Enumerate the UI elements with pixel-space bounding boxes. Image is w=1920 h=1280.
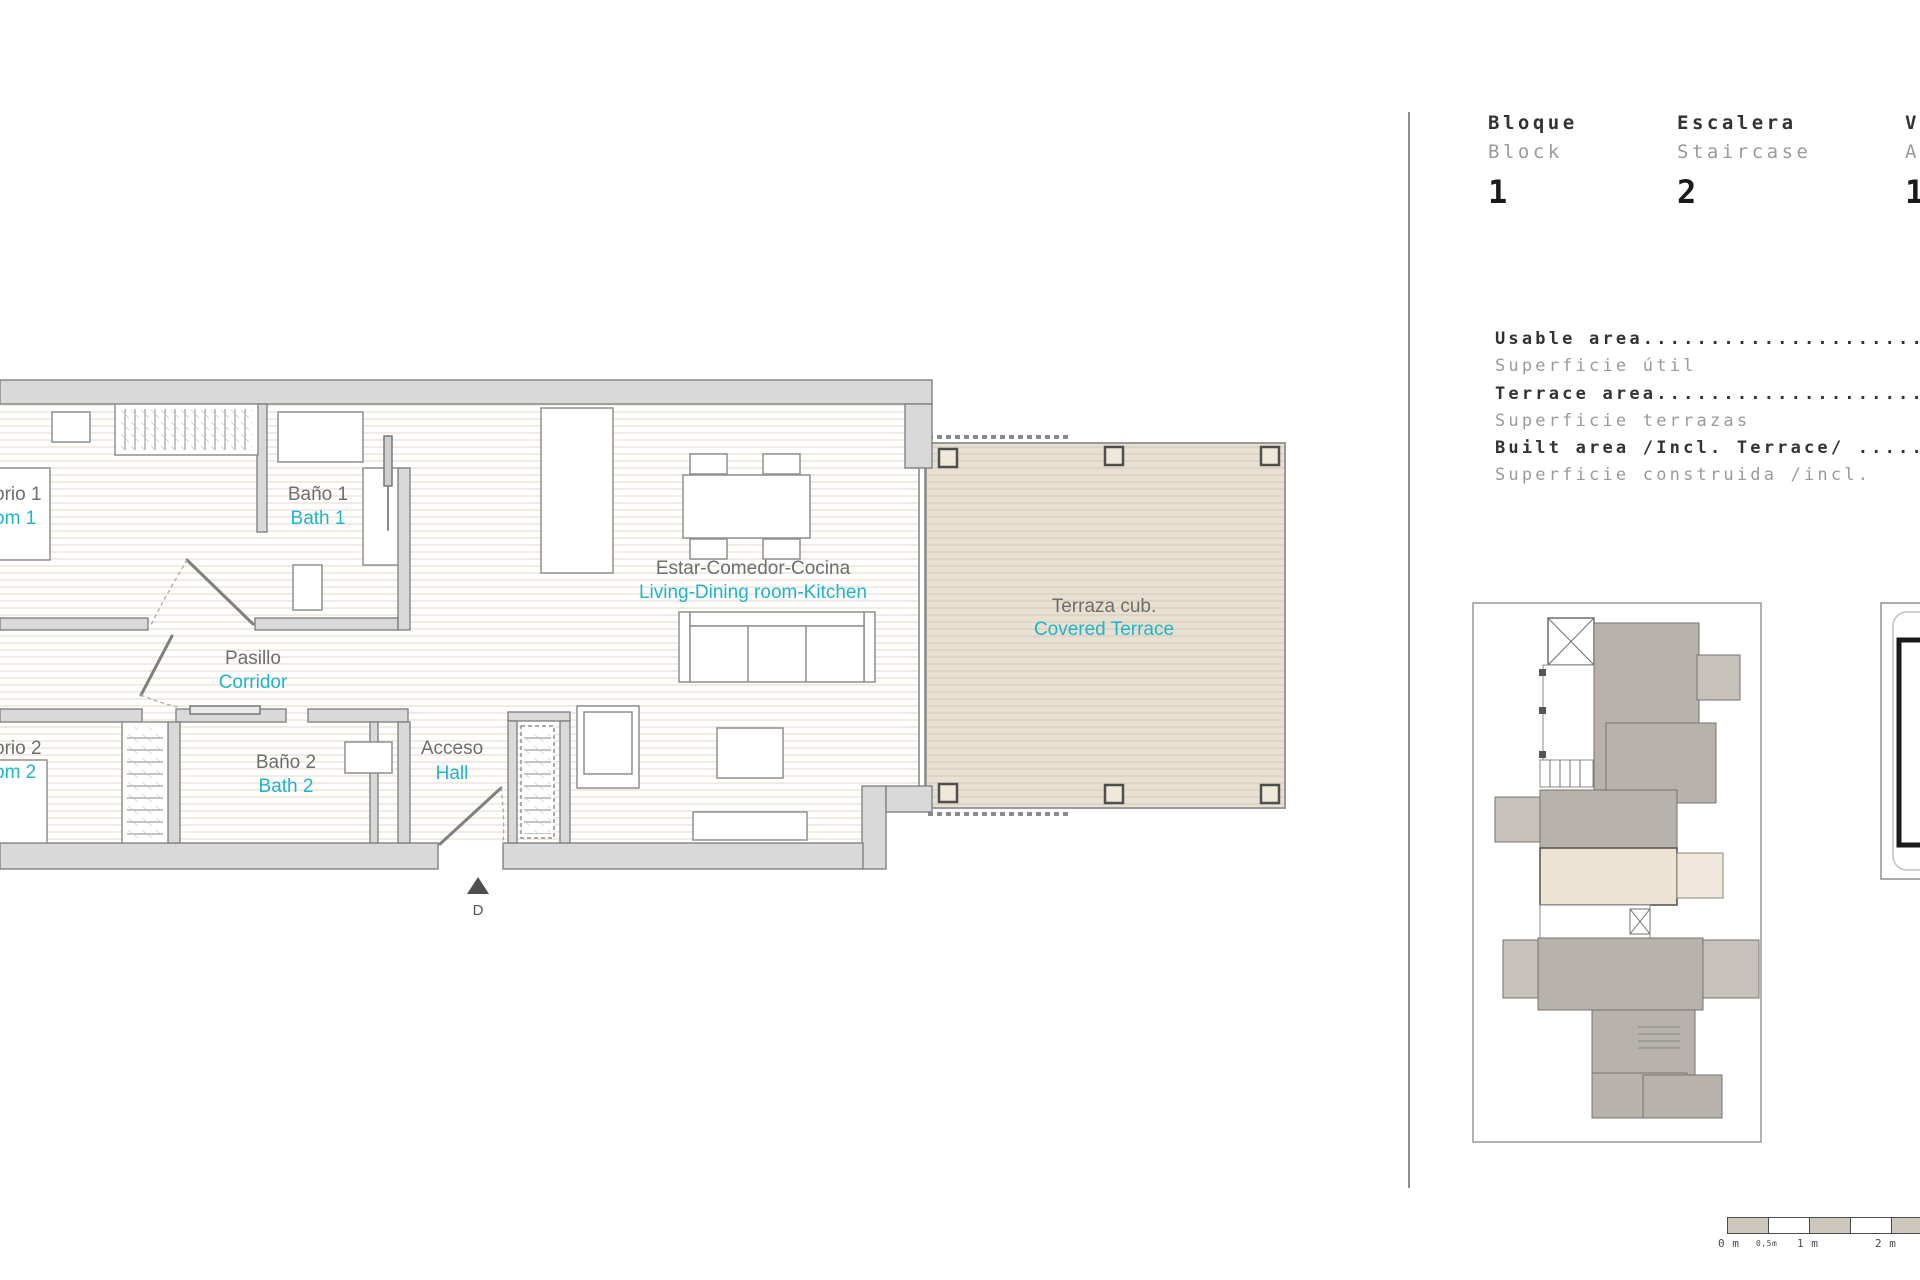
apartment-floorplan: orio 1 om 1 Baño 1 Bath 1 Pasillo Corrid…: [0, 0, 1340, 1280]
room-label-living-en: Living-Dining room-Kitchen: [639, 582, 867, 603]
staircase-number: 2: [1677, 173, 1811, 211]
block-label-es: Bloque: [1488, 112, 1578, 134]
room-label-bedroom2-en: om 2: [0, 762, 36, 783]
block-label-en: Block: [1488, 141, 1578, 163]
dining-chair: [763, 454, 800, 474]
scale-bar: [1727, 1217, 1920, 1234]
apartment-column: V A 1: [1905, 112, 1920, 211]
scale-segment: [1892, 1218, 1920, 1233]
room-label-bath1-es: Baño 1: [288, 484, 348, 505]
terrace-area-label-es: Superficie terrazas: [1495, 408, 1920, 435]
key-plan: [1408, 600, 1920, 1280]
floorplan-sheet: orio 1 om 1 Baño 1 Bath 1 Pasillo Corrid…: [0, 0, 1920, 1280]
location-diagram: [1881, 603, 1920, 879]
room-label-bedroom1-en: om 1: [0, 508, 36, 529]
block-number: 1: [1488, 173, 1578, 211]
entrance-door-marker: D: [473, 902, 484, 919]
scale-label-1m: 1 m: [1797, 1237, 1818, 1250]
usable-area-label-es: Superficie útil: [1495, 353, 1920, 380]
usable-area-label: Usable area.............................…: [1495, 326, 1920, 353]
scale-segment: [1769, 1218, 1810, 1233]
scale-label-0m: 0 m: [1718, 1237, 1739, 1250]
room-label-terrace-en: Covered Terrace: [1034, 619, 1174, 640]
room-label-terrace-es: Terraza cub.: [1052, 596, 1157, 617]
room-label-bedroom1-es: orio 1: [0, 484, 42, 505]
built-area-label-es: Superficie construida /incl.: [1495, 462, 1920, 489]
bath1-pocket-door: [384, 436, 392, 486]
block-column: Bloque Block 1: [1488, 112, 1578, 211]
room-label-corridor-en: Corridor: [219, 672, 288, 693]
room-label-hall-en: Hall: [436, 763, 469, 784]
scale-segment: [1810, 1218, 1851, 1233]
apartment-label-en: A: [1905, 141, 1920, 163]
room-label-bath2-es: Baño 2: [256, 752, 316, 773]
area-summary: Usable area.............................…: [1495, 326, 1920, 490]
staircase-label-en: Staircase: [1677, 141, 1811, 163]
room-label-living-es: Estar-Comedor-Cocina: [656, 558, 851, 579]
built-area-label: Built area /Incl. Terrace/ .............…: [1495, 435, 1920, 462]
scale-segment: [1851, 1218, 1892, 1233]
nightstand-1: [52, 412, 90, 442]
staircase-label-es: Escalera: [1677, 112, 1811, 134]
bath2-pocket-door: [190, 706, 260, 714]
scale-label-2m: 2 m: [1875, 1237, 1896, 1250]
dining-chair: [763, 539, 800, 559]
bath1-toilet: [293, 565, 322, 610]
staircase-column: Escalera Staircase 2: [1677, 112, 1811, 211]
coffee-table: [717, 728, 783, 778]
dining-chair: [690, 539, 727, 559]
room-label-bedroom2-es: orio 2: [0, 738, 42, 759]
terrace-area-label: Terrace area............................…: [1495, 381, 1920, 408]
room-label-hall-es: Acceso: [421, 738, 483, 759]
scale-label-05m: 0,5m: [1756, 1239, 1777, 1248]
dining-table: [683, 475, 810, 538]
apartment-label-es: V: [1905, 112, 1920, 134]
room-label-bath2-en: Bath 2: [259, 776, 314, 797]
entrance-direction-arrow: [467, 877, 489, 894]
kitchen-island: [541, 408, 613, 573]
highlighted-unit: [1540, 848, 1677, 905]
sofa: [679, 612, 875, 682]
room-label-bath1-en: Bath 1: [291, 508, 346, 529]
bath2-vanity: [345, 742, 392, 773]
room-label-corridor-es: Pasillo: [225, 648, 281, 669]
scale-segment: [1728, 1218, 1769, 1233]
tv-cabinet: [693, 812, 807, 840]
bath1-vanity: [278, 412, 363, 462]
apartment-number: 1: [1905, 173, 1920, 211]
dining-chair: [690, 454, 727, 474]
